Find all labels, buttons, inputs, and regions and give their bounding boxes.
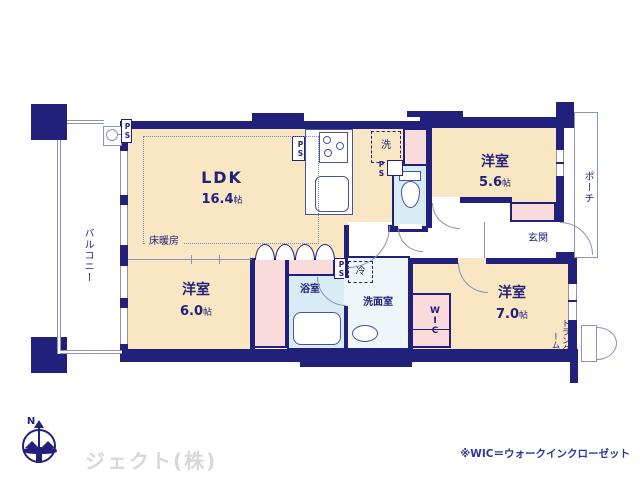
washroom-label: 洗面室 (348, 297, 408, 308)
balcony-label: バルコニー (77, 205, 93, 305)
trunk-room-box (581, 325, 597, 362)
bedroom-70-size: 7.0帖 (472, 304, 552, 322)
ps-label-hall: PS (334, 258, 346, 279)
genkan-label: 玄関 (508, 233, 568, 244)
trunk-door-lower (597, 343, 617, 360)
bedroom-60-name: 洋室 (156, 283, 236, 298)
window-ldk-1 (120, 151, 128, 195)
wall-right-56-b (556, 176, 564, 204)
wall-corner-ne (556, 102, 574, 128)
wall-entrance-side (556, 204, 564, 222)
bedroom-70-size-value: 7.0 (496, 307, 519, 322)
shoe-cabinet (510, 202, 556, 222)
partition-ldk-60 (128, 259, 252, 260)
balcony-rail-bottom (60, 350, 122, 354)
bedroom-60-size-unit: 帖 (203, 308, 212, 318)
partition-tick-2 (219, 255, 220, 264)
compass-north-label: N (24, 416, 38, 427)
closet-over-toilet (403, 128, 428, 166)
window-70-tick (568, 300, 577, 302)
wall-top-70-b (486, 258, 577, 264)
kitchen-sink (315, 176, 349, 212)
stove-burner-3 (324, 149, 332, 157)
balcony-rail-left (57, 140, 61, 354)
ps-label-washer: PS (373, 160, 385, 177)
floor-plan: PS バルコニー ポーチ トランクルーム WIC 浴室 洗面室 冷 PS PS … (0, 0, 640, 480)
bird-logo-wing-left (25, 441, 39, 448)
wall-left-mullion-1 (120, 195, 128, 205)
bedroom-60-size-value: 6.0 (180, 304, 203, 319)
bedroom-60-size: 6.0帖 (156, 301, 236, 319)
genkan-step-line (484, 222, 485, 258)
ldk-size-unit: 帖 (234, 196, 243, 206)
ldk-size-value: 16.4 (201, 192, 233, 207)
wall-beam-1 (252, 113, 304, 121)
window-60-2 (120, 308, 128, 344)
partition-tick-1 (191, 255, 192, 264)
bedroom-56-size-value: 5.6 (479, 175, 502, 190)
bedroom-56-size-unit: 帖 (502, 179, 511, 189)
wall-left-mullion-2 (120, 298, 128, 308)
wall-top-70-a (410, 258, 458, 264)
bathtub (293, 312, 341, 345)
wall-top-56 (420, 117, 560, 128)
floor-heating-label: 床暖房 (145, 236, 183, 247)
stove-burner-1 (323, 136, 331, 144)
wall-right-tail (570, 362, 578, 383)
wall-bottom (120, 349, 578, 362)
window-70-porch (568, 284, 577, 320)
balcony-faucet-icon (106, 129, 118, 141)
bedroom-70-size-unit: 帖 (519, 311, 528, 321)
window-56-tick (556, 162, 564, 164)
bird-logo-tail (36, 453, 42, 463)
wall-beam-2 (407, 111, 463, 117)
ldk-name: LDK (167, 169, 277, 187)
bird-logo-wing-right (41, 441, 55, 448)
trunk-door-upper (597, 327, 617, 343)
balcony-pillar-bottom (31, 337, 67, 373)
wall-left-2 (120, 245, 128, 266)
stove-burner-2 (336, 142, 344, 150)
wall-right-56-a (556, 128, 564, 150)
wic-note: ※WIC＝ウォークインクローゼット (450, 446, 630, 461)
ps-box-washer (387, 160, 403, 176)
closet-column-60 (253, 258, 287, 348)
washroom-sink (352, 325, 378, 342)
wall-top-ldk (120, 121, 426, 129)
balcony-rail-top (67, 120, 104, 124)
wall-bottom-step (300, 362, 412, 367)
company-logo-text: ジェクト(株) (85, 445, 217, 474)
wic-label: WIC (423, 297, 439, 345)
washer-label: 洗 (371, 140, 401, 151)
window-ldk-2 (120, 205, 128, 245)
ldk-size: 16.4帖 (167, 189, 277, 207)
porch-label: ポーチ (578, 160, 593, 214)
ps-label-balcony: PS (121, 119, 132, 143)
trunk-label: トランクルーム (548, 316, 570, 364)
bedroom-56-size: 5.6帖 (455, 172, 535, 190)
bedroom-70-name: 洋室 (472, 286, 552, 301)
balcony-pillar-top (31, 104, 67, 140)
wall-right-70-a (568, 262, 577, 284)
bedroom-56-name: 洋室 (455, 155, 535, 170)
window-60-1 (120, 266, 128, 298)
